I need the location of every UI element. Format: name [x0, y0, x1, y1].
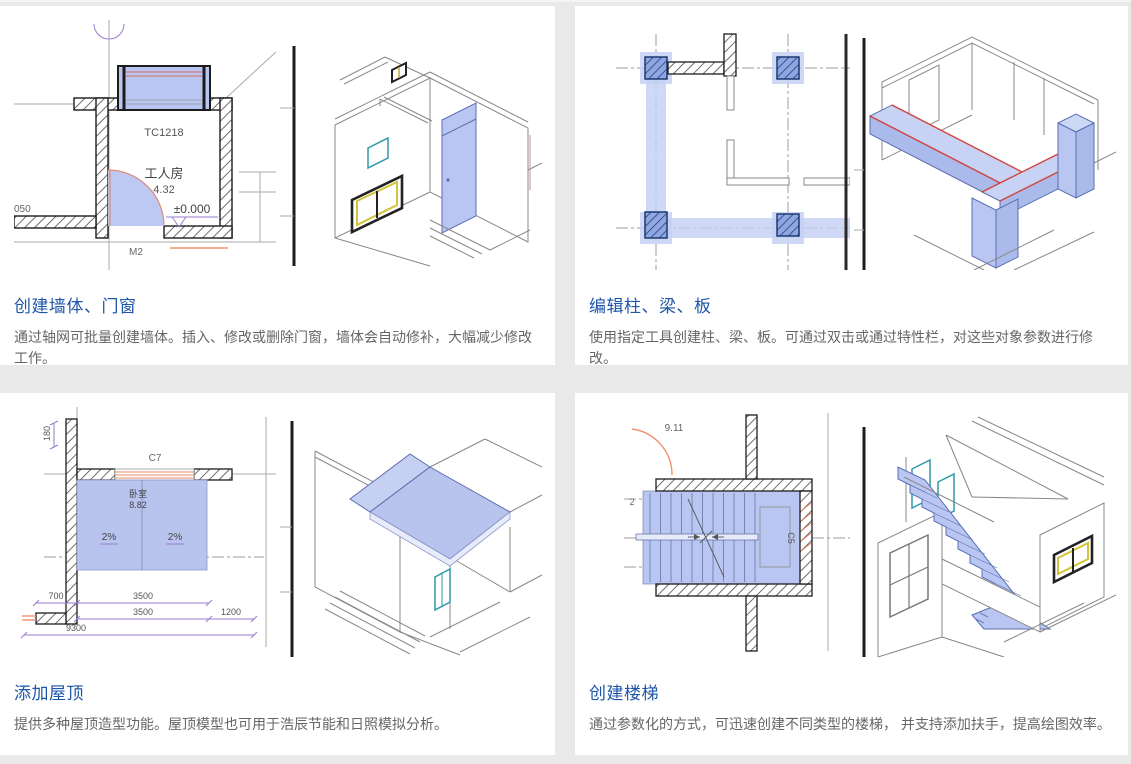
feature-card-walls: TC1218 工人房 4.32 ±0.000 M2 050 — [0, 6, 555, 365]
plan-level-mark: ±0.000 — [173, 202, 210, 216]
feature-description-columns: 使用指定工具创建柱、梁、板。可通过双击或通过特性栏，对这些对象参数进行修改。 — [589, 327, 1114, 365]
feature-title-stairs[interactable]: 创建楼梯 — [589, 679, 1114, 704]
stairs-figure: 9.11 2 C5 — [575, 393, 1128, 673]
stairs-level-mark: 9.11 — [664, 423, 683, 434]
stairs-plan-drawing: 9.11 2 C5 — [588, 407, 850, 657]
feature-title-walls[interactable]: 创建墙体、门窗 — [14, 292, 541, 317]
features-grid: TC1218 工人房 4.32 ±0.000 M2 050 — [0, 6, 1128, 755]
roof-dim-3500b: 3500 — [132, 607, 152, 617]
columns-figure — [575, 6, 1128, 286]
roof-figure: C7 卧室 8.82 2% 2% 180 — [0, 393, 555, 673]
roof-3d-drawing — [280, 407, 542, 657]
roof-dim-9300: 9300 — [65, 623, 85, 633]
roof-dim-3500a: 3500 — [132, 591, 152, 601]
walls-plan-drawing: TC1218 工人房 4.32 ±0.000 M2 050 — [14, 20, 276, 270]
roof-plan-drawing: C7 卧室 8.82 2% 2% 180 — [14, 407, 276, 657]
plan-left-partial-label: 050 — [14, 204, 31, 215]
feature-card-columns: 编辑柱、梁、板 使用指定工具创建柱、梁、板。可通过双击或通过特性栏，对这些对象参… — [575, 6, 1128, 365]
feature-description-walls: 通过轴网可批量创建墙体。插入、修改或删除门窗，墙体会自动修补，大幅减少修改工作。 — [14, 327, 541, 365]
roof-slope-left: 2% — [101, 532, 116, 543]
columns-plan-drawing — [588, 20, 850, 270]
roof-room-area: 8.82 — [129, 500, 147, 510]
roof-dim-1200: 1200 — [220, 607, 240, 617]
feature-description-stairs: 通过参数化的方式，可迅速创建不同类型的楼梯， 并支持添加扶手，提高绘图效率。 — [589, 714, 1114, 735]
plan-room-area: 4.32 — [153, 184, 174, 196]
roof-dim-700: 700 — [48, 591, 63, 601]
plan-room-name: 工人房 — [144, 166, 183, 181]
features-page: TC1218 工人房 4.32 ±0.000 M2 050 — [0, 0, 1131, 764]
walls-3d-drawing — [280, 20, 542, 270]
roof-room-name: 卧室 — [128, 488, 146, 499]
plan-window-tag: TC1218 — [144, 127, 183, 139]
columns-3d-drawing — [854, 20, 1116, 270]
stairs-window-tag: C5 — [786, 532, 796, 544]
feature-title-columns[interactable]: 编辑柱、梁、板 — [589, 292, 1114, 317]
feature-description-roof: 提供多种屋顶造型功能。屋顶模型也可用于浩辰节能和日照模拟分析。 — [14, 714, 541, 735]
roof-dim-180: 180 — [42, 426, 52, 441]
feature-title-roof[interactable]: 添加屋顶 — [14, 679, 541, 704]
roof-window-tag: C7 — [148, 453, 161, 464]
feature-card-stairs: 9.11 2 C5 — [575, 393, 1128, 755]
feature-card-roof: C7 卧室 8.82 2% 2% 180 — [0, 393, 555, 755]
plan-door-tag: M2 — [129, 247, 143, 258]
roof-slope-right: 2% — [167, 532, 182, 543]
stairs-3d-drawing — [854, 407, 1116, 657]
walls-figure: TC1218 工人房 4.32 ±0.000 M2 050 — [0, 6, 555, 286]
stairs-grid-label: 2 — [629, 497, 634, 507]
